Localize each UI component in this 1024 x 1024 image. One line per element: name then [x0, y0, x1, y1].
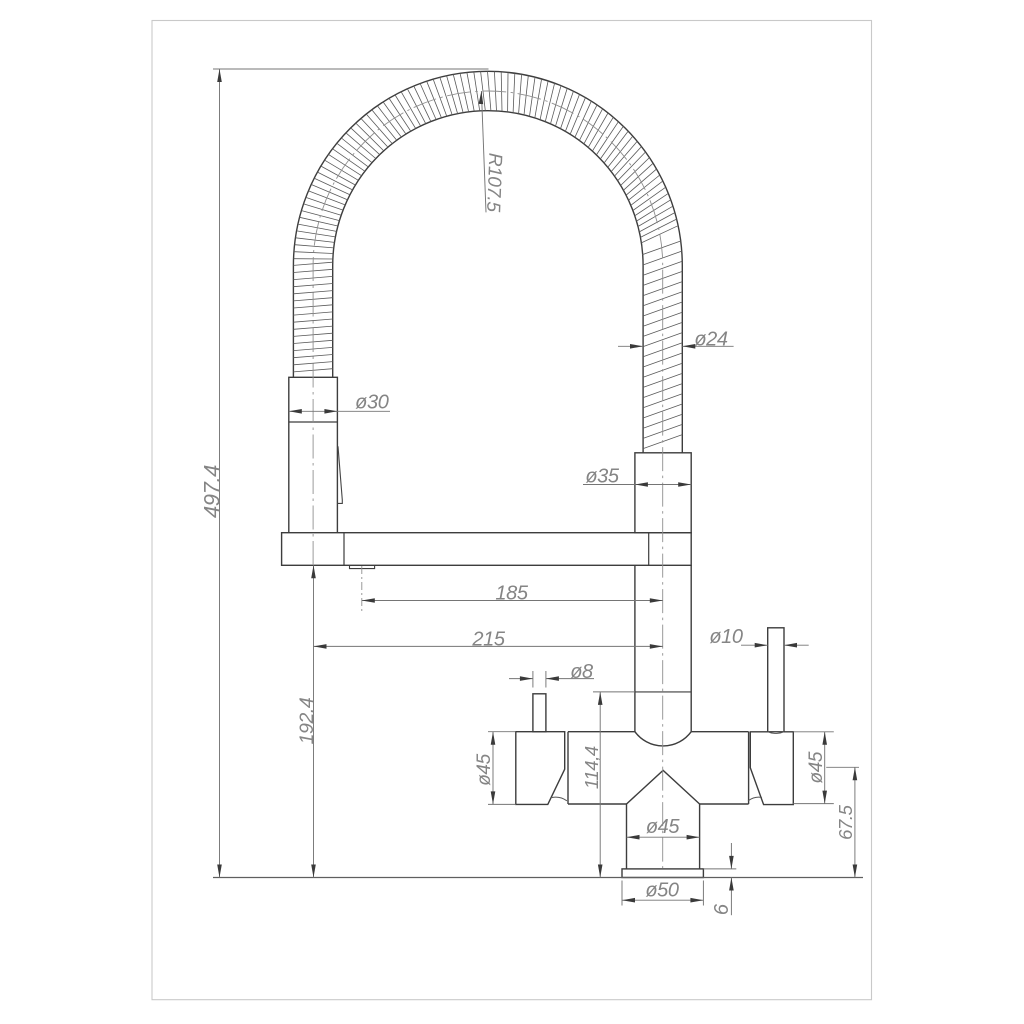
svg-text:ø35: ø35	[585, 466, 620, 488]
svg-text:ø30: ø30	[355, 392, 389, 414]
svg-text:ø45: ø45	[646, 816, 681, 838]
svg-text:ø24: ø24	[694, 329, 728, 351]
svg-text:185: 185	[495, 583, 528, 605]
svg-text:114,4: 114,4	[581, 746, 602, 789]
svg-text:ø10: ø10	[709, 626, 743, 648]
svg-text:ø45: ø45	[474, 753, 495, 785]
svg-text:215: 215	[471, 628, 505, 650]
svg-text:67.5: 67.5	[835, 804, 856, 840]
svg-text:ø50: ø50	[645, 880, 679, 902]
svg-text:ø45: ø45	[806, 751, 827, 783]
svg-text:192.4: 192.4	[296, 697, 318, 744]
svg-text:R107.5: R107.5	[482, 152, 505, 212]
svg-text:6: 6	[711, 903, 733, 915]
svg-text:ø8: ø8	[570, 661, 593, 683]
svg-text:497.4: 497.4	[199, 465, 224, 518]
